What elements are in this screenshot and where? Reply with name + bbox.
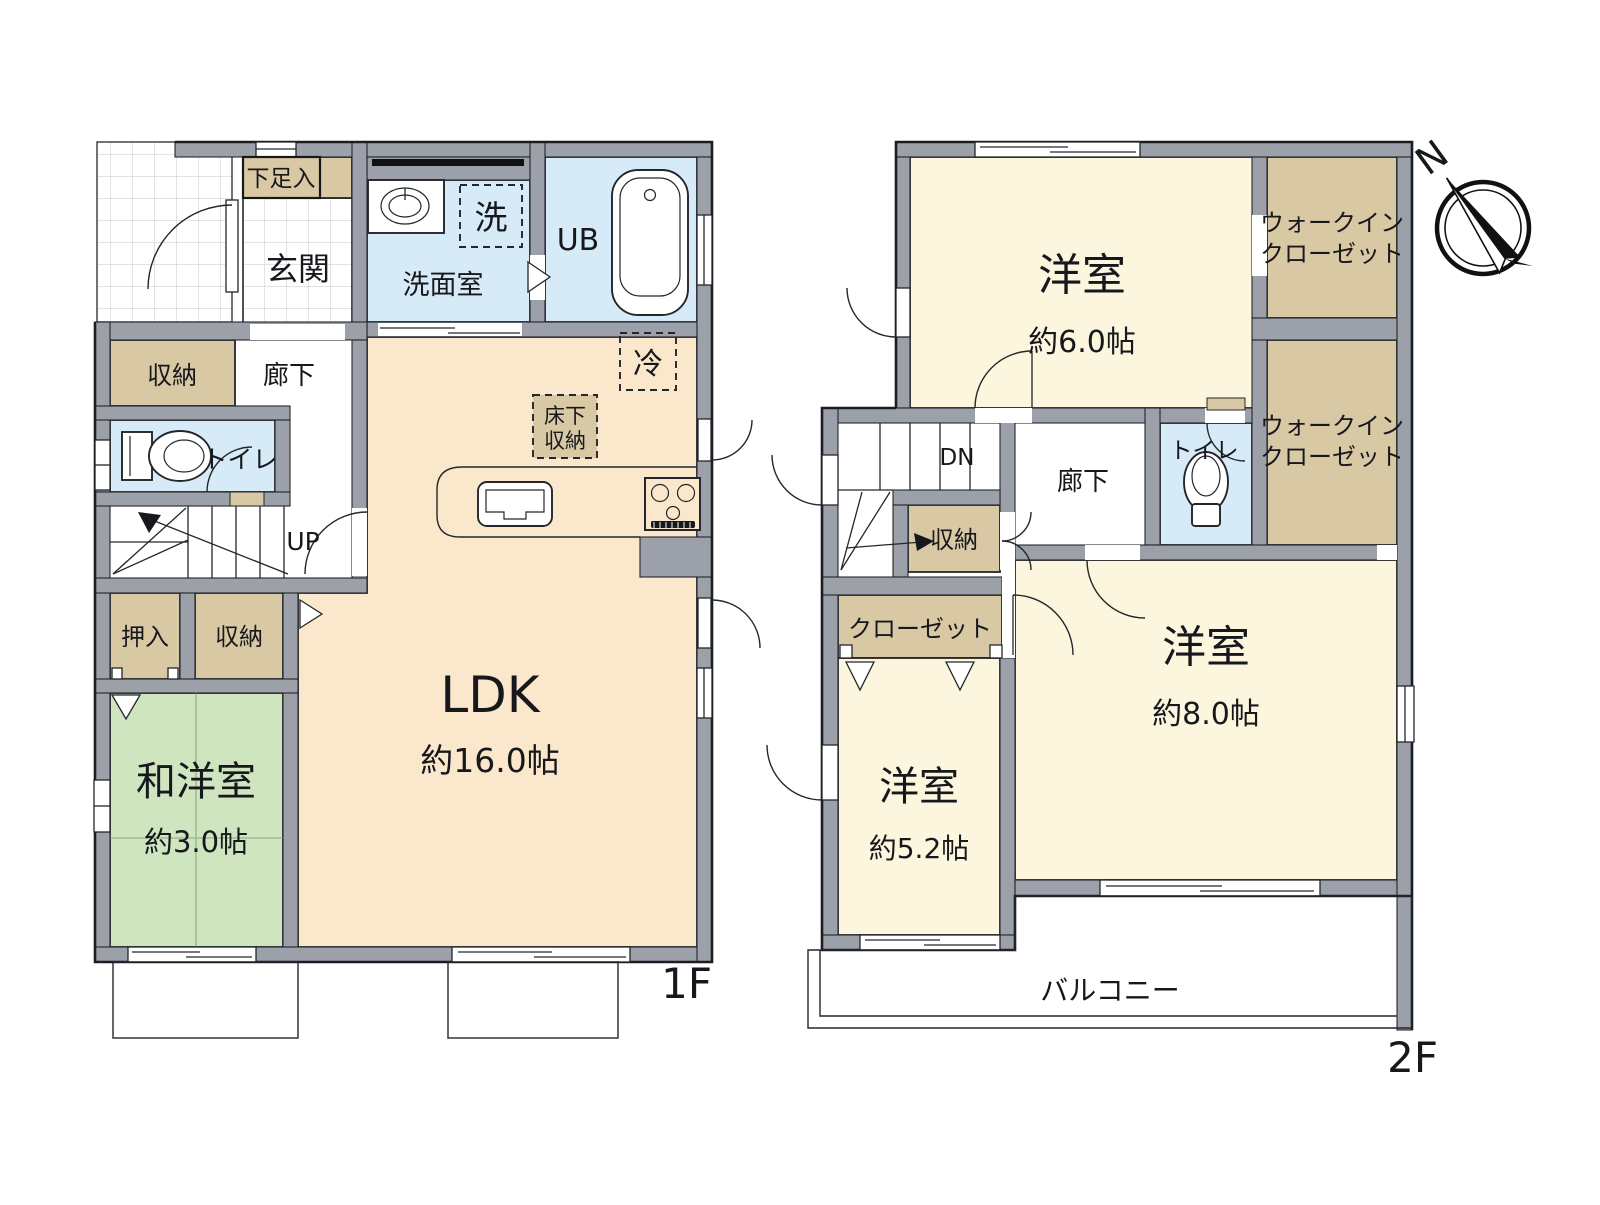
label-corridor-2f: 廊下 [1057, 467, 1109, 497]
label-japanese-room: 和洋室 [136, 759, 256, 805]
label-japanese-room-size: 約3.0帖 [144, 825, 248, 859]
label-corridor-1f: 廊下 [263, 361, 315, 391]
label-washroom: 洗面室 [403, 270, 484, 301]
label-wic2-line1: ウォークイン [1260, 412, 1404, 440]
label-wic1-line2: クローゼット [1260, 240, 1404, 268]
label-stairs-down: DN [940, 445, 975, 471]
label-bedroom3-size: 約8.0帖 [1152, 697, 1260, 732]
door-ldk-right [698, 598, 760, 648]
window-slider-bottom-right [452, 947, 630, 962]
stairs-1f [110, 506, 288, 578]
back-door-kitchen [698, 419, 752, 461]
compass-north-label: N [1407, 131, 1456, 183]
window-bed3-right [1397, 686, 1414, 742]
label-washer: 洗 [475, 198, 508, 237]
label-underfloor-2: 収納 [544, 429, 586, 453]
window-toilet-left [95, 440, 110, 490]
floor-plan-1f: 下足入 玄関 洗 洗面室 UB 収納 廊下 トイレ UP 冷 床下 収納 押入 … [94, 142, 760, 1038]
window-slider-bottom-left [128, 947, 256, 962]
label-toilet-1f: トイレ [202, 445, 277, 474]
label-storage2: 収納 [215, 623, 263, 651]
terrace-left [113, 962, 298, 1038]
label-shoe-cabinet: 下足入 [247, 166, 316, 192]
window-slider-top-2f [975, 142, 1140, 157]
window-japanese-left [94, 780, 110, 832]
label-fridge: 冷 [633, 347, 663, 382]
label-entrance: 玄関 [266, 250, 330, 288]
floor-label-2f: 2F [1387, 1033, 1438, 1082]
terrace-right [448, 962, 618, 1038]
label-storage-hall: 収納 [147, 361, 197, 390]
label-bedroom1-size: 約6.0帖 [1028, 325, 1136, 360]
window-slider-bed2-bottom [860, 935, 1000, 950]
floor-plan-2f: 洋室 約6.0帖 ウォークイン クローゼット ウォークイン クローゼット DN … [767, 142, 1438, 1082]
label-stairs-up: UP [286, 527, 319, 556]
label-ldk-size: 約16.0帖 [420, 741, 559, 780]
label-balcony: バルコニー [1040, 974, 1179, 1007]
label-bedroom3: 洋室 [1162, 622, 1250, 673]
label-bedroom2: 洋室 [879, 764, 959, 810]
compass-icon: N [1407, 129, 1532, 285]
label-toilet-2f: トイレ [1170, 438, 1239, 464]
window-ldk-right [697, 668, 712, 718]
window-slider-bed3-bottom [1100, 880, 1320, 896]
window-ub-right [697, 215, 712, 285]
label-storage-2f: 収納 [930, 526, 978, 554]
label-ldk: LDK [440, 666, 540, 724]
eave-bar [372, 159, 524, 166]
door-washroom-slider [378, 323, 522, 336]
floor-label-1f: 1F [661, 959, 712, 1008]
label-wic1-line1: ウォークイン [1260, 209, 1404, 237]
label-bedroom1: 洋室 [1038, 250, 1126, 301]
label-underfloor-1: 床下 [544, 404, 586, 428]
floor-plan-page: 下足入 玄関 洗 洗面室 UB 収納 廊下 トイレ UP 冷 床下 収納 押入 … [0, 0, 1600, 1200]
floor-plan-canvas: 下足入 玄関 洗 洗面室 UB 収納 廊下 トイレ UP 冷 床下 収納 押入 … [0, 0, 1600, 1200]
window-casement-bed1-left [847, 288, 910, 337]
label-wic2-line2: クローゼット [1260, 443, 1404, 471]
room-wic1 [1267, 157, 1397, 318]
vanity-sink-icon [368, 180, 444, 233]
window-casement-bed2-left [767, 745, 838, 800]
stove-icon [645, 478, 700, 530]
label-oshiire: 押入 [121, 623, 169, 651]
window-casement-stairs-left [772, 455, 838, 505]
label-closet-2f: クローゼット [848, 615, 992, 643]
label-unit-bath: UB [557, 223, 600, 258]
toilet-icon-1f [122, 431, 211, 481]
window-top-small [256, 142, 296, 157]
porch-tile [97, 142, 232, 322]
bathtub-icon [612, 170, 688, 315]
label-bedroom2-size: 約5.2帖 [869, 832, 970, 865]
